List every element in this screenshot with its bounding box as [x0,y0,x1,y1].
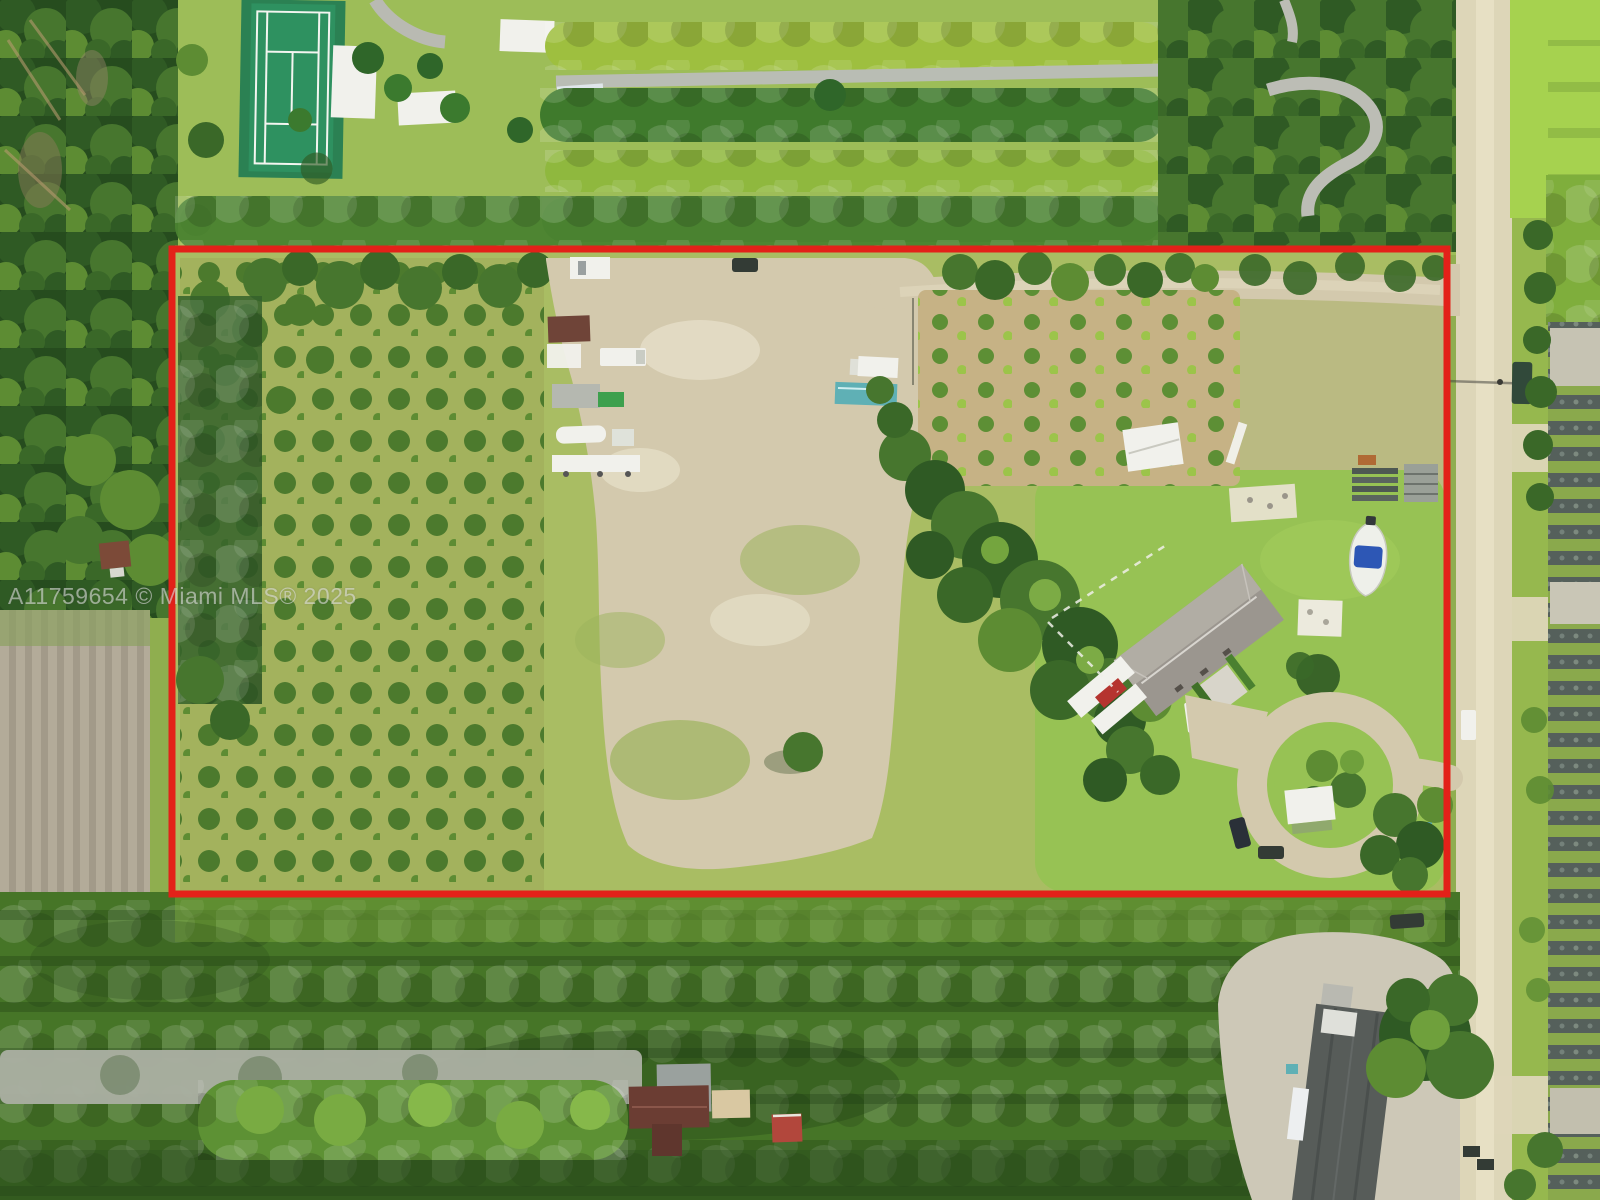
boat-blue-cover [1353,545,1382,569]
white-van [1461,710,1476,740]
orange-equipment [1358,455,1376,465]
hedge-row [545,22,1165,70]
gray-trailer [552,384,600,408]
barn-white-end [1321,1009,1358,1037]
brown-roof-wing [652,1124,682,1156]
hedge-row [540,88,1165,142]
hedge-row [545,150,1160,192]
tennis-court [238,0,345,185]
white-canopy [547,344,581,368]
green-bin [598,392,624,407]
white-tent [1122,422,1183,471]
parcel-interior [174,250,1460,929]
dark-car [732,258,758,272]
bright-tree-band [198,1080,628,1160]
small-boat [612,429,634,446]
orchard-west-trees [176,296,262,740]
white-box-truck [858,356,899,378]
rusty-shed [99,541,132,570]
long-white-trailer [552,455,640,472]
white-pad [1297,599,1342,637]
parked-car [1463,1146,1480,1157]
power-pole [1497,379,1503,385]
brown-shed-icon [548,315,591,342]
teal-equipment [1286,1064,1298,1074]
car-near-hedge [1390,913,1425,929]
white-slab-debris [1229,484,1297,523]
outboard-motor [1365,516,1376,526]
red-shed-icon [772,1113,803,1142]
dark-car [1258,846,1284,859]
aerial-photo-frame: A11759654 © Miami MLS® 2025 [0,0,1600,1200]
white-carport [1284,786,1335,825]
fruit-grove [913,290,1240,486]
white-shed-icon [570,257,610,279]
parked-car [1477,1159,1494,1170]
mls-watermark: A11759654 © Miami MLS® 2025 [8,583,357,610]
palm-tree [814,79,846,111]
patio [712,1090,750,1119]
boat-on-trailer [556,425,607,444]
